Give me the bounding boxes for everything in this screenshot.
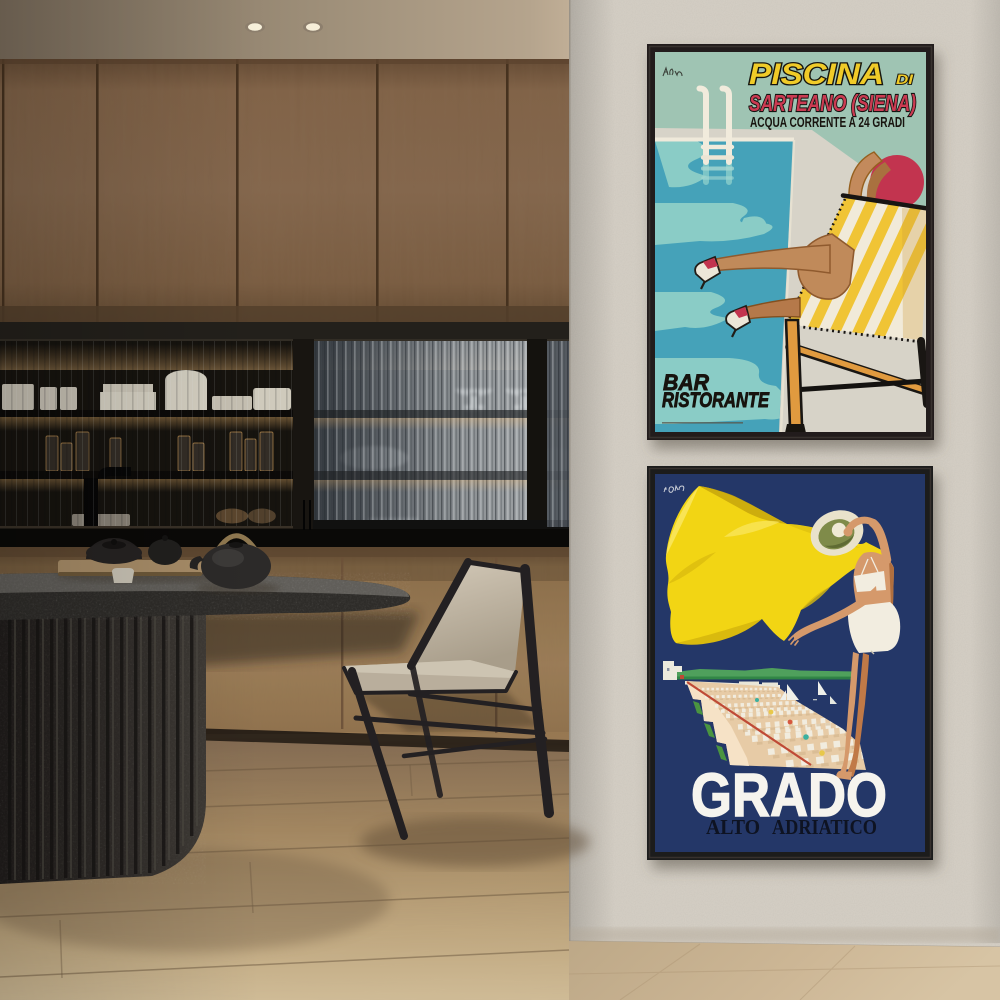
- svg-text:RISTORANTE: RISTORANTE: [662, 389, 770, 412]
- svg-text:ALTO: ALTO: [706, 815, 760, 839]
- svg-text:PISCINA: PISCINA: [749, 58, 884, 91]
- svg-text:ACQUA CORRENTE A 24 GRADI: ACQUA CORRENTE A 24 GRADI: [750, 115, 905, 131]
- svg-text:ADRIATICO: ADRIATICO: [772, 815, 877, 839]
- svg-text:DI: DI: [896, 71, 914, 87]
- svg-text:SARTEANO (SIENA): SARTEANO (SIENA): [749, 90, 916, 116]
